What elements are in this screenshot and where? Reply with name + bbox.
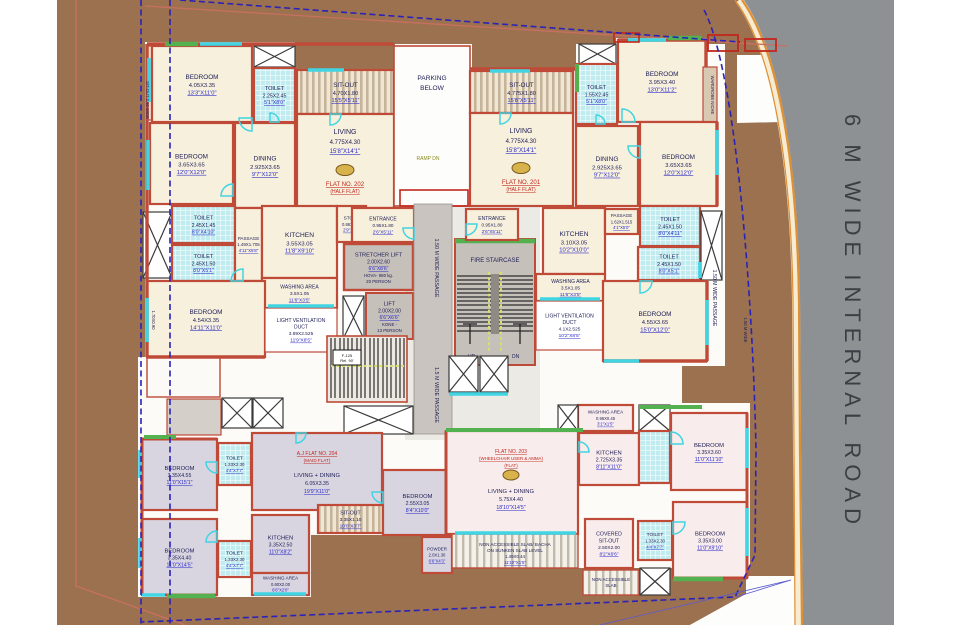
svg-text:PARKING: PARKING [417,75,446,82]
svg-text:1.33X2.30: 1.33X2.30 [224,462,245,467]
svg-text:HOVA- 980 kg.: HOVA- 980 kg. [364,273,393,278]
svg-text:LIVING + DINING: LIVING + DINING [488,489,534,495]
svg-text:COVERED: COVERED [596,532,622,538]
svg-text:8'0"X5'1": 8'0"X5'1" [659,269,680,275]
svg-text:1.49X0.44: 1.49X0.44 [505,554,526,559]
svg-text:2.00X2.00: 2.00X2.00 [378,309,401,315]
svg-text:STRETCHER LIFT: STRETCHER LIFT [355,252,403,258]
svg-text:0.96X0.45: 0.96X0.45 [596,416,616,421]
svg-text:LIGHT VENTILATION: LIGHT VENTILATION [545,314,594,320]
svg-text:NON ACCESSIBLE SLAB/ BACHA: NON ACCESSIBLE SLAB/ BACHA [479,542,551,547]
svg-text:KONE -: KONE - [382,322,398,327]
svg-text:2.45X1.50: 2.45X1.50 [657,262,681,268]
svg-text:3.55X3.05: 3.55X3.05 [286,241,312,247]
svg-text:1.49X1.705: 1.49X1.705 [237,242,260,247]
svg-text:11'8"X9'10": 11'8"X9'10" [285,249,314,255]
svg-text:3.95X3.40: 3.95X3.40 [649,80,675,86]
svg-text:SIT-OUT: SIT-OUT [599,538,620,544]
svg-text:DUCT: DUCT [563,320,577,326]
svg-text:6'6"X8'6": 6'6"X8'6" [369,266,389,272]
svg-text:1.50 M WIDE PASSAGE: 1.50 M WIDE PASSAGE [433,239,439,298]
svg-text:2.925X3.65: 2.925X3.65 [592,165,622,171]
svg-text:WARDROBE NICHE: WARDROBE NICHE [710,76,715,115]
svg-text:BEDROOM: BEDROOM [175,154,208,161]
svg-text:8'2"X6'6": 8'2"X6'6" [599,552,618,558]
svg-text:ENTRANCE: ENTRANCE [478,216,506,222]
svg-text:15'0"X12'0": 15'0"X12'0" [640,327,670,333]
svg-text:6'6"X4'3": 6'6"X4'3" [429,558,446,563]
svg-text:1.50 M WIDE PASSAGE: 1.50 M WIDE PASSAGE [711,270,717,327]
svg-text:PASSAGE: PASSAGE [238,236,260,241]
svg-text:LIFT: LIFT [384,301,396,307]
svg-text:4.55X3.65: 4.55X3.65 [642,320,668,326]
svg-text:KITCHEN: KITCHEN [285,232,314,239]
svg-text:BEDROOM: BEDROOM [165,466,195,472]
svg-text:6'6"X6'6": 6'6"X6'6" [380,315,400,321]
svg-text:TOILET: TOILET [647,532,664,538]
svg-text:POWDER: POWDER [427,547,447,552]
svg-text:2.0X1.30: 2.0X1.30 [429,553,446,558]
svg-text:15'8"X14'1": 15'8"X14'1" [506,148,537,154]
svg-text:13'3"X11'0": 13'3"X11'0" [187,90,216,96]
svg-text:DUCT: DUCT [294,325,308,331]
svg-text:BEDROOM: BEDROOM [189,309,222,316]
svg-text:8'4"X10'0": 8'4"X10'0" [406,508,430,514]
svg-text:LIGHT VENTILATION: LIGHT VENTILATION [277,318,326,324]
svg-text:4.1X2.525: 4.1X2.525 [559,327,581,333]
svg-text:3.65X3.65: 3.65X3.65 [178,163,204,169]
svg-text:12'0"X12'0": 12'0"X12'0" [664,170,694,176]
svg-text:BELOW: BELOW [420,85,445,92]
svg-text:5.75X4.40: 5.75X4.40 [499,497,523,503]
svg-text:1.55X2.45: 1.55X2.45 [585,92,609,98]
svg-text:4'4"X7'7": 4'4"X7'7" [226,468,244,473]
svg-text:BEDROOM: BEDROOM [645,71,678,78]
svg-text:2.25X2.45: 2.25X2.45 [263,93,287,99]
svg-text:DINING: DINING [253,156,276,163]
svg-text:TOILET: TOILET [659,255,679,261]
svg-text:SLAB: SLAB [605,583,616,588]
svg-text:3'1"X1'5": 3'1"X1'5" [597,422,614,427]
svg-text:FIRE STAIRCASE: FIRE STAIRCASE [471,258,520,264]
svg-text:SIT-OUT: SIT-OUT [340,510,361,516]
svg-text:(FLAT): (FLAT) [504,463,518,468]
svg-text:0.95X1.80: 0.95X1.80 [482,223,503,228]
svg-text:FLAT NO. 202: FLAT NO. 202 [326,182,365,188]
svg-text:14'11"X11'0": 14'11"X11'0" [190,325,222,331]
svg-text:11'6"X3'5": 11'6"X3'5" [560,292,582,298]
svg-text:2.925X3.65: 2.925X3.65 [250,165,280,171]
svg-text:SIT-OUT: SIT-OUT [333,82,358,89]
svg-text:3.5X1.05: 3.5X1.05 [290,291,310,297]
svg-text:BEDROOM: BEDROOM [695,531,725,537]
svg-text:2.00X2.60: 2.00X2.60 [367,260,390,266]
svg-text:Rel. 90': Rel. 90' [340,358,354,363]
svg-text:20 PERSON: 20 PERSON [366,279,391,284]
svg-text:11'0"X11'10": 11'0"X11'10" [695,457,724,463]
svg-text:4'4"X7'7": 4'4"X7'7" [646,545,664,550]
svg-text:15'8"X14'1": 15'8"X14'1" [330,149,361,155]
svg-text:3.35X1.10: 3.35X1.10 [340,517,362,523]
svg-text:3.35X4.40: 3.35X4.40 [168,556,192,562]
svg-text:TOILET: TOILET [194,216,214,222]
svg-text:SIT-OUT: SIT-OUT [509,82,534,89]
svg-text:2'6"X5'11": 2'6"X5'11" [373,229,394,234]
svg-text:4'1"X5'0": 4'1"X5'0" [613,225,630,230]
svg-text:FLAT NO. 203: FLAT NO. 203 [495,449,527,455]
svg-text:1.50 M WIDE: 1.50 M WIDE [743,318,748,343]
svg-text:3.35X3.60: 3.35X3.60 [697,450,721,456]
svg-text:(HALF FLAT): (HALF FLAT) [506,187,536,193]
svg-text:BEDROOM: BEDROOM [638,311,671,318]
svg-text:4.775X4.30: 4.775X4.30 [506,139,537,145]
svg-text:2.45X1.50: 2.45X1.50 [658,224,682,230]
svg-text:1.33X2.30: 1.33X2.30 [224,557,245,562]
svg-text:TOILET: TOILET [660,217,680,223]
svg-text:4.775X4.30: 4.775X4.30 [330,140,361,146]
svg-text:5'1"X8'0": 5'1"X8'0" [586,99,607,105]
svg-text:0.95X1.80: 0.95X1.80 [373,223,394,228]
svg-text:4.70X1.80: 4.70X1.80 [333,91,359,97]
svg-text:TOILET: TOILET [265,86,285,92]
svg-text:DN: DN [512,354,520,360]
svg-text:2'6"X5'11": 2'6"X5'11" [482,229,503,234]
svg-text:LIVING: LIVING [510,128,533,135]
svg-text:WASHING AREA: WASHING AREA [588,410,624,415]
svg-text:TOILET: TOILET [226,456,243,462]
svg-text:KITCHEN: KITCHEN [596,450,621,456]
svg-text:WASHING AREA: WASHING AREA [263,576,299,581]
svg-text:10'2"X10'0": 10'2"X10'0" [559,248,589,254]
svg-text:NON ACCESSIBLE: NON ACCESSIBLE [592,577,630,582]
svg-text:DINING: DINING [595,156,618,163]
svg-text:12'0"X12'0": 12'0"X12'0" [177,170,207,176]
svg-text:8'11"X11'0": 8'11"X11'0" [596,465,622,471]
svg-text:8'0"X4'11": 8'0"X4'11" [658,231,681,237]
svg-text:1.5 M WIDE PASSAGE: 1.5 M WIDE PASSAGE [433,367,439,423]
svg-text:9'7"X12'0": 9'7"X12'0" [252,172,278,178]
svg-text:9'7"X12'0": 9'7"X12'0" [594,173,620,179]
svg-text:(MAID FLAT): (MAID FLAT) [304,458,331,463]
svg-text:4.775X1.80: 4.775X1.80 [507,91,536,97]
svg-text:BEDROOM: BEDROOM [185,74,218,81]
svg-text:10'0"X3'7": 10'0"X3'7" [340,524,362,530]
svg-text:5'1"X8'0": 5'1"X8'0" [264,100,285,106]
svg-text:3.35X4.55: 3.35X4.55 [168,473,192,479]
svg-text:2.725X3.35: 2.725X3.35 [596,458,623,464]
svg-text:WASHING AREA: WASHING AREA [280,284,319,290]
svg-text:PASSAGE: PASSAGE [611,213,633,218]
svg-text:3.89X2.525: 3.89X2.525 [289,331,314,337]
svg-text:6'6"X2'0": 6'6"X2'0" [272,588,289,593]
svg-text:11'0"X8'2": 11'0"X8'2" [269,550,292,556]
svg-text:RAMP DN: RAMP DN [417,156,440,162]
svg-text:0.60X2.00: 0.60X2.00 [271,582,291,587]
svg-text:6.05X3.35: 6.05X3.35 [305,481,329,487]
svg-text:KITCHEN: KITCHEN [268,535,293,541]
svg-text:1.33X2.30: 1.33X2.30 [645,539,666,544]
svg-text:2.50X2.00: 2.50X2.00 [598,545,620,551]
svg-text:13 PERSON: 13 PERSON [377,328,402,333]
svg-text:3.35X3.00: 3.35X3.00 [698,539,722,545]
svg-text:2.55X3.05: 2.55X3.05 [406,501,430,507]
svg-text:ENTRANCE: ENTRANCE [369,217,397,223]
svg-text:BEDROOM: BEDROOM [662,154,695,161]
svg-text:4'4"X7'7": 4'4"X7'7" [226,563,244,568]
svg-text:2.45X1.45: 2.45X1.45 [192,223,216,229]
svg-text:11'0"X9'10": 11'0"X9'10" [697,546,723,552]
svg-text:KITCHEN: KITCHEN [560,231,589,238]
svg-text:3.5X1.05: 3.5X1.05 [561,285,581,291]
svg-text:8'0"X4'10": 8'0"X4'10" [192,230,216,236]
svg-text:FLAT NO. 201: FLAT NO. 201 [502,180,541,186]
svg-text:11'9"X8'5": 11'9"X8'5" [290,338,312,344]
svg-text:ON SUNKEN SLAB LEVEL: ON SUNKEN SLAB LEVEL [487,548,543,553]
svg-text:BEDROOM: BEDROOM [403,494,433,500]
svg-text:15'5"X5'11": 15'5"X5'11" [331,98,359,104]
svg-text:8'0"X5'1": 8'0"X5'1" [193,268,214,274]
svg-text:BEDROOM: BEDROOM [165,548,195,554]
svg-text:LIVING + DINING: LIVING + DINING [294,473,340,479]
svg-text:15'8"X5'11": 15'8"X5'11" [507,98,535,104]
svg-text:2.45X1.50: 2.45X1.50 [192,261,216,267]
svg-text:(WHEELCHAIR USER & AMMA): (WHEELCHAIR USER & AMMA) [479,456,543,461]
svg-text:3.10X3.05: 3.10X3.05 [561,240,587,246]
svg-text:4.54X3.35: 4.54X3.35 [193,318,219,324]
svg-text:11'10"X1'5": 11'10"X1'5" [504,560,526,565]
svg-text:11'6"X3'5": 11'6"X3'5" [289,297,311,303]
svg-text:3.35X2.50: 3.35X2.50 [269,543,293,549]
svg-text:SIT-OUT 0.90 WIDE: SIT-OUT 0.90 WIDE [145,81,150,119]
svg-text:6 M WIDE INTERNAL ROAD: 6 M WIDE INTERNAL ROAD [840,114,865,530]
svg-text:13'0"X11'2": 13'0"X11'2" [647,87,676,93]
svg-text:TOILET: TOILET [226,551,243,557]
svg-text:A.J FLAT NO. 204: A.J FLAT NO. 204 [297,451,338,457]
svg-text:TOILET: TOILET [587,85,607,91]
svg-text:1.70X0.90: 1.70X0.90 [151,310,156,330]
svg-text:1.62X1.515: 1.62X1.515 [611,219,633,224]
svg-text:WASHING AREA: WASHING AREA [551,279,590,285]
svg-text:10'2"X8'5": 10'2"X8'5" [559,333,581,339]
svg-text:LIVING: LIVING [334,129,357,136]
svg-text:(HALF FLAT): (HALF FLAT) [330,189,360,195]
svg-text:19'9"X11'0": 19'9"X11'0" [304,489,330,495]
svg-text:TOILET: TOILET [194,254,214,260]
svg-text:3.65X3.65: 3.65X3.65 [665,163,691,169]
svg-text:4.05X3.35: 4.05X3.35 [189,83,215,89]
svg-text:BEDROOM: BEDROOM [694,443,724,449]
svg-text:18'10"X14'5": 18'10"X14'5" [496,505,525,511]
svg-text:4'11"X5'8": 4'11"X5'8" [239,248,259,253]
